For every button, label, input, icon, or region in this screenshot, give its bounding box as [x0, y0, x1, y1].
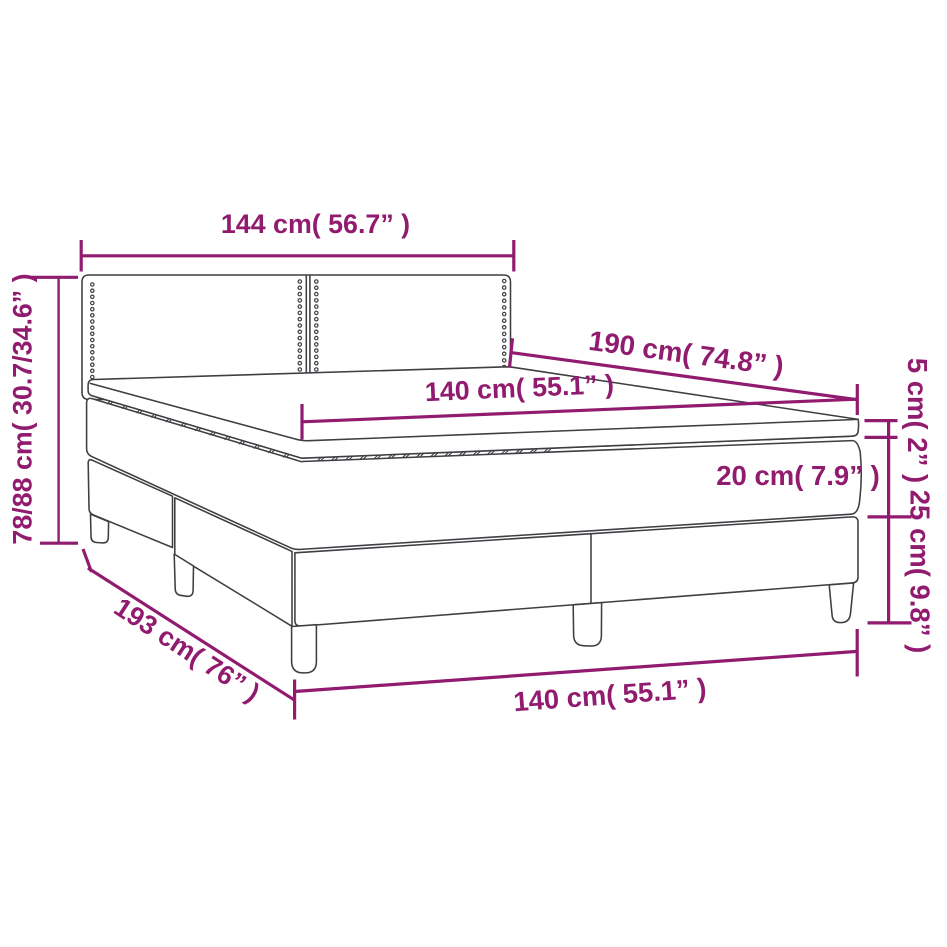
svg-text:25 cm( 9.8” ): 25 cm( 9.8” )	[905, 490, 936, 654]
svg-text:78/88 cm( 30.7/34.6” ): 78/88 cm( 30.7/34.6” )	[8, 273, 38, 544]
svg-text:144 cm( 56.7” ): 144 cm( 56.7” )	[221, 209, 410, 239]
svg-text:5 cm( 2” ): 5 cm( 2” )	[902, 358, 933, 483]
svg-text:20 cm( 7.9” ): 20 cm( 7.9” )	[716, 460, 880, 491]
